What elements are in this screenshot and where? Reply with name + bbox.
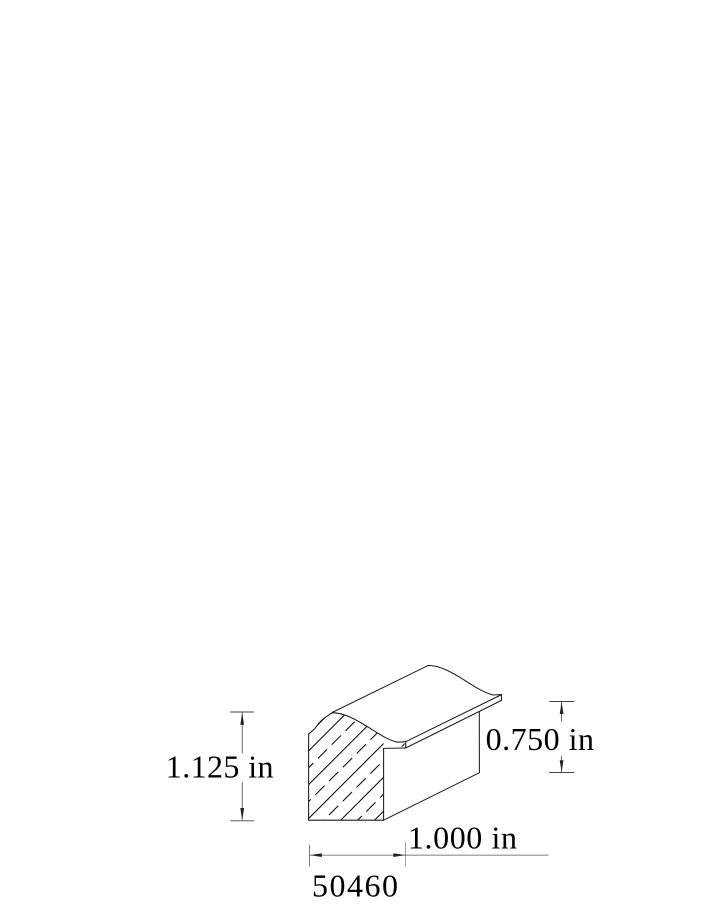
svg-text:1.000 in: 1.000 in	[408, 820, 518, 856]
svg-text:0.750 in: 0.750 in	[486, 721, 595, 757]
svg-text:50460: 50460	[312, 868, 400, 904]
svg-text:1.125 in: 1.125 in	[166, 749, 274, 785]
